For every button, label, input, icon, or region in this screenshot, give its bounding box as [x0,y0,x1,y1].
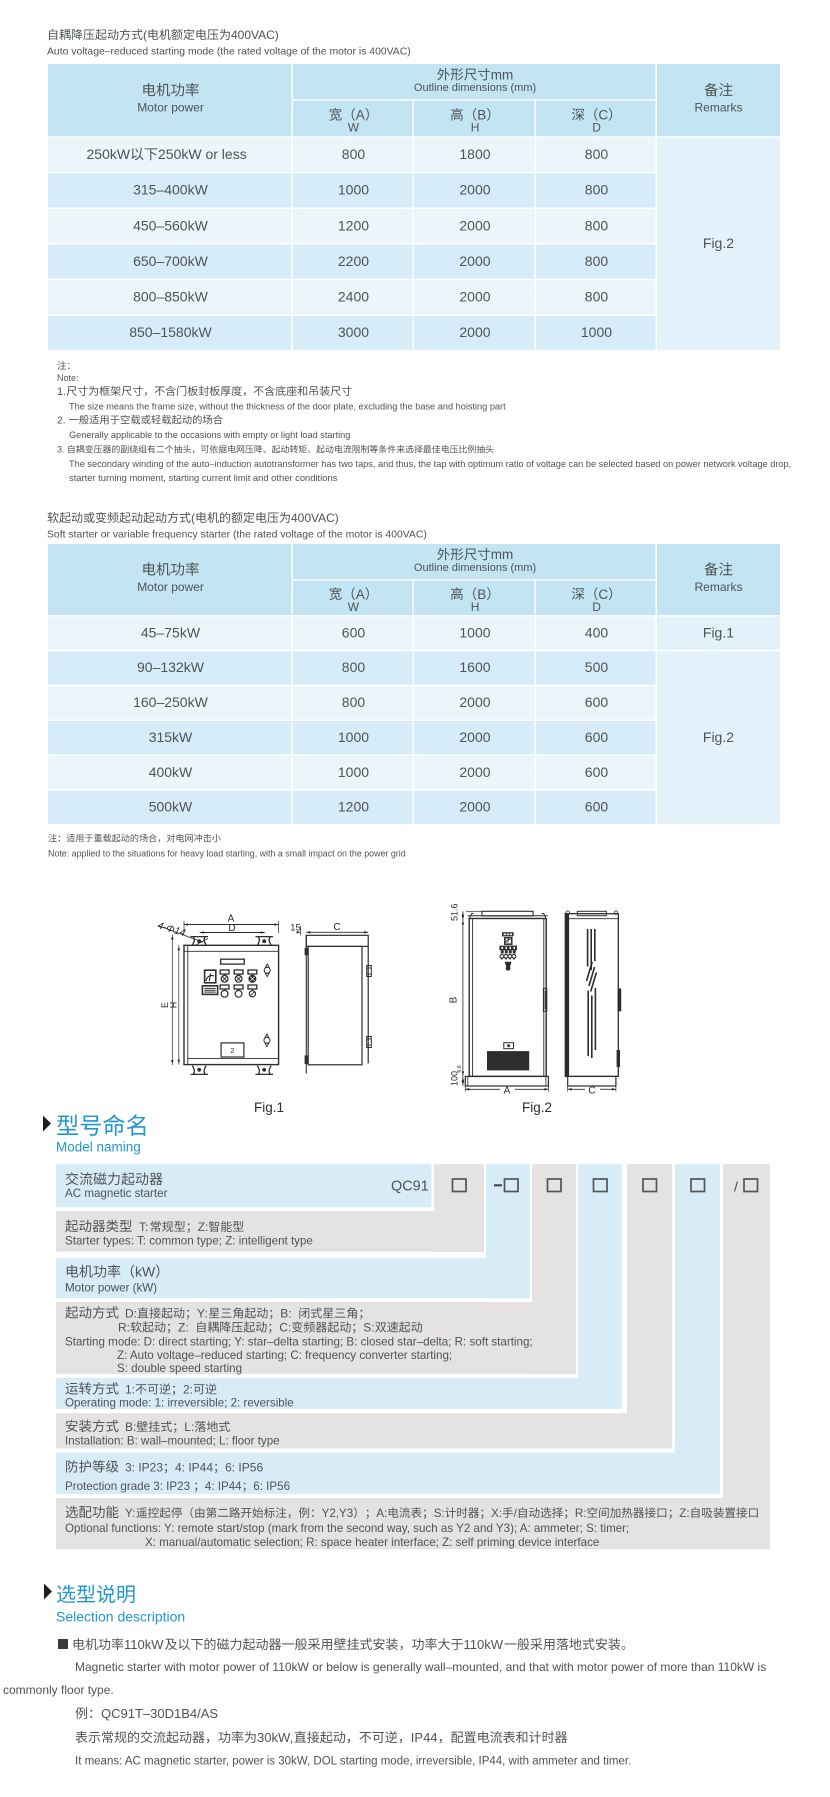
svg-text:800: 800 [342,659,366,675]
svg-text:W: W [348,600,360,614]
svg-text:H: H [169,1002,179,1009]
svg-text:Fig.2: Fig.2 [703,729,734,745]
svg-text:C: C [588,1086,595,1097]
svg-text:Operating mode: 1: irreversibl: Operating mode: 1: irreversible; 2: reve… [65,1397,294,1410]
svg-text:315–400kW: 315–400kW [133,182,209,198]
svg-text:Fig.1: Fig.1 [703,624,734,640]
svg-text:Model naming: Model naming [56,1140,141,1155]
svg-text:IP44: IP44 [411,1730,438,1745]
svg-text:S:: S: [434,1507,445,1520]
svg-text:Starter types: T: common type;: Starter types: T: common type; Z: intell… [65,1235,313,1248]
svg-text:4: IP44: 4: IP44 [205,1480,242,1493]
svg-text:mm: mm [491,547,514,562]
svg-text:1000: 1000 [338,182,369,198]
svg-text:T:: T: [139,1220,148,1234]
svg-text:1000: 1000 [581,324,612,340]
svg-text:kW: kW [135,1264,156,1280]
svg-text:Optional functions: Y: remote: Optional functions: Y: remote start/stop… [65,1522,629,1535]
svg-text:Auto voltage–reduced starting: Auto voltage–reduced starting mode (the … [47,47,411,58]
svg-text:800: 800 [342,146,366,162]
svg-text:Protection grade 3: IP23: Protection grade 3: IP23 [65,1480,190,1493]
svg-text:X:: X: [491,1507,502,1520]
svg-text:Remarks: Remarks [695,101,743,115]
svg-text:Motor power: Motor power [137,101,204,115]
svg-text:Magnetic starter with motor po: Magnetic starter with motor power of 110… [75,1660,766,1674]
svg-text:1200: 1200 [338,799,369,815]
svg-text:Z:: Z: [198,1220,209,1234]
svg-text:800: 800 [585,289,609,305]
svg-text:45–75kW: 45–75kW [141,624,201,640]
svg-text:315kW: 315kW [149,729,193,745]
svg-text:A: A [504,1086,511,1097]
svg-text:400VAC): 400VAC) [231,28,279,42]
svg-text:1800: 1800 [459,146,490,162]
svg-text:1000: 1000 [459,624,490,640]
svg-text:1600: 1600 [459,659,490,675]
svg-text:6: IP56: 6: IP56 [253,1480,290,1493]
svg-text:2000: 2000 [459,217,490,233]
svg-text:Outline dimensions (mm): Outline dimensions (mm) [414,82,536,94]
svg-text:650–700kW: 650–700kW [133,253,209,269]
svg-text:Z:: Z: [178,1321,189,1335]
svg-text:600: 600 [585,799,609,815]
svg-text:D:: D: [125,1307,137,1321]
svg-text:2000: 2000 [459,253,490,269]
svg-text:Motor power: Motor power [137,580,204,594]
svg-text:The size means the frame size,: The size means the frame size, without t… [69,402,506,412]
svg-text:S: double speed starting: S: double speed starting [117,1362,242,1375]
svg-text:Fig.1: Fig.1 [254,1100,284,1115]
svg-text:2000: 2000 [459,694,490,710]
svg-text:2000: 2000 [459,764,490,780]
svg-text:250kW: 250kW [87,146,131,162]
svg-text:3: IP23: 3: IP23 [125,1461,163,1475]
svg-text:2200: 2200 [338,253,369,269]
svg-text:800: 800 [585,146,609,162]
svg-text:30kW,: 30kW, [257,1730,293,1745]
svg-text:1:: 1: [125,1383,135,1397]
svg-text:4: IP44: 4: IP44 [175,1461,213,1475]
svg-text:90–132kW: 90–132kW [137,659,205,675]
svg-text:QC91T–30D1B4/AS: QC91T–30D1B4/AS [101,1706,218,1721]
svg-text:1.: 1. [57,386,66,398]
svg-text:B:: B: [280,1307,291,1321]
svg-text:2000: 2000 [459,182,490,198]
svg-text:QC91: QC91 [391,1179,429,1195]
svg-text:Note:: Note: [57,373,79,383]
svg-text:51.6: 51.6 [450,903,460,921]
svg-text:2.: 2. [57,416,66,427]
svg-text:L:: L: [184,1420,194,1434]
svg-text:Fig.2: Fig.2 [703,235,734,251]
svg-text:800: 800 [585,217,609,233]
svg-text:450–560kW: 450–560kW [133,217,209,233]
svg-text:H: H [471,120,480,134]
svg-text:W: W [348,120,360,134]
svg-text:2000: 2000 [459,324,490,340]
svg-text:2000: 2000 [459,799,490,815]
svg-text:Y:: Y: [197,1307,208,1321]
svg-text:The secondary winding of the a: The secondary winding of the auto–induct… [69,459,791,469]
svg-text:B: B [449,996,460,1003]
svg-text:D: D [228,923,235,934]
svg-text:15: 15 [290,923,301,934]
svg-text:Fig.2: Fig.2 [522,1100,552,1115]
svg-text:Starting mode: D: direct start: Starting mode: D: direct starting; Y: st… [65,1336,533,1349]
svg-text:1000: 1000 [338,764,369,780]
svg-text:A:: A: [376,1507,387,1520]
svg-text:Y:: Y: [125,1507,135,1520]
svg-text:D: D [592,120,601,134]
svg-text:3.: 3. [57,445,64,455]
svg-text:2: 2 [230,1046,234,1055]
svg-text:R:: R: [575,1507,587,1520]
svg-text:6: IP56: 6: IP56 [225,1461,263,1475]
svg-text:Soft starter or variable frequ: Soft starter or variable frequency start… [47,530,427,541]
svg-text:800: 800 [585,182,609,198]
svg-text:110kW: 110kW [124,1637,164,1652]
svg-text:Selection description: Selection description [56,1609,185,1625]
svg-text:Z: Auto voltage–reduced starti: Z: Auto voltage–reduced starting; C: fre… [117,1349,452,1362]
svg-text:400: 400 [585,624,609,640]
svg-text:Note: applied to the situation: Note: applied to the situations for heav… [48,849,406,859]
svg-text:It means: AC magnetic starter,: It means: AC magnetic starter, power is … [75,1756,631,1768]
svg-text:2000: 2000 [459,729,490,745]
svg-text:800: 800 [342,694,366,710]
svg-text:R:: R: [118,1321,130,1335]
svg-text:2:: 2: [183,1383,193,1397]
svg-text:160–250kW: 160–250kW [133,694,209,710]
svg-text:850–1580kW: 850–1580kW [129,324,212,340]
svg-text:1200: 1200 [338,217,369,233]
svg-text:commonly floor type.: commonly floor type. [3,1683,114,1697]
svg-text:C: C [333,922,340,933]
svg-text:Installation: B: wall–mounted;: Installation: B: wall–mounted; L: floor … [65,1435,280,1448]
svg-text:Motor power (kW): Motor power (kW) [65,1282,157,1295]
svg-text:Z:: Z: [679,1507,689,1520]
svg-text:H: H [471,600,480,614]
svg-text:C:: C: [279,1321,291,1335]
svg-text:starter turning moment, starti: starter turning moment, starting current… [69,472,338,483]
svg-text:110kW: 110kW [464,1637,504,1652]
svg-text:400kW: 400kW [149,764,193,780]
svg-text:/: / [734,1179,738,1195]
svg-text:800: 800 [585,253,609,269]
svg-text:Outline dimensions (mm): Outline dimensions (mm) [414,562,536,574]
svg-text:600: 600 [585,729,609,745]
svg-text:AC magnetic starter: AC magnetic starter [65,1187,168,1200]
svg-text:mm: mm [491,67,514,82]
svg-text:4.6: 4.6 [457,1065,463,1073]
svg-text:600: 600 [585,764,609,780]
svg-text:X: manual/automatic selection;: X: manual/automatic selection; R: space … [145,1536,599,1549]
svg-text:Y2,Y3: Y2,Y3 [322,1507,354,1520]
svg-text:S:: S: [363,1321,374,1335]
svg-text:400VAC): 400VAC) [291,511,339,525]
svg-text:2000: 2000 [459,289,490,305]
svg-text:500kW: 500kW [149,799,193,815]
svg-text:2400: 2400 [338,289,369,305]
svg-text:600: 600 [342,624,366,640]
svg-text:600: 600 [585,694,609,710]
svg-text:3000: 3000 [338,324,369,340]
svg-text:Generally applicable to the oc: Generally applicable to the occasions wi… [69,430,350,440]
svg-text:250kW or less: 250kW or less [158,146,247,162]
svg-text:800–850kW: 800–850kW [133,289,209,305]
svg-text:(: ( [191,511,195,525]
svg-text:(: ( [143,28,147,42]
svg-text:D: D [592,600,601,614]
svg-text:500: 500 [585,659,609,675]
svg-text:Remarks: Remarks [695,580,743,594]
svg-text:1000: 1000 [338,729,369,745]
svg-text:B:: B: [125,1420,136,1434]
